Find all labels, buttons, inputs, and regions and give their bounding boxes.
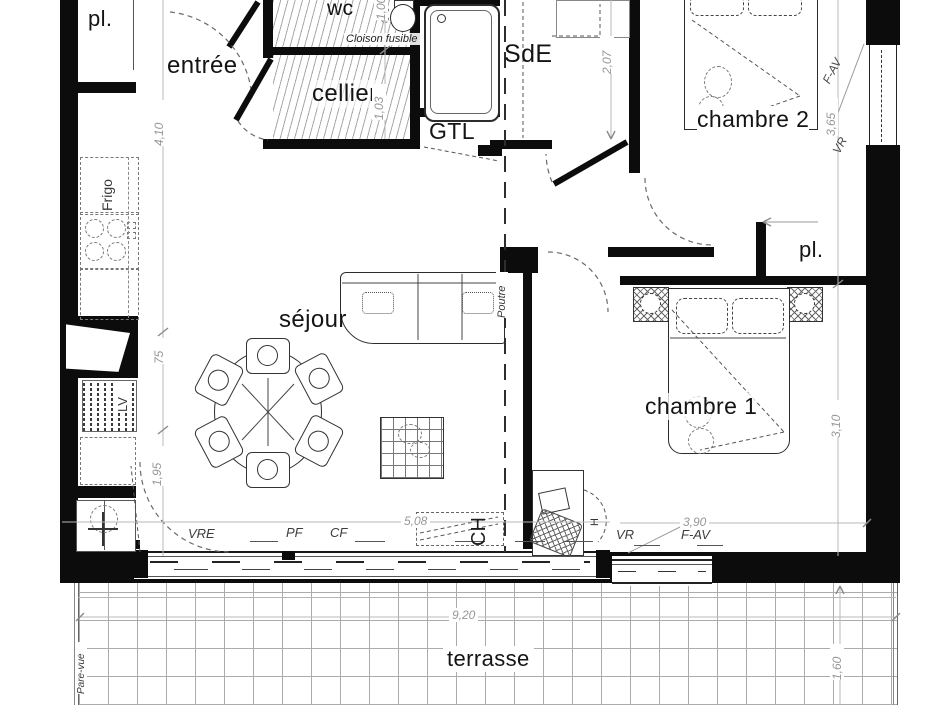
window-bay-frame — [134, 576, 610, 577]
chair-seat — [305, 364, 333, 392]
dim-3-10: 3,10 — [829, 400, 843, 438]
opening-label-vr-ch1: VR — [616, 527, 634, 542]
window-chambre2 — [866, 45, 900, 145]
room-label-chambre1: chambre 1 — [645, 393, 757, 420]
opening-dash — [634, 545, 660, 546]
room-label-chambre2: chambre 2 — [697, 106, 809, 133]
pillow — [676, 298, 728, 334]
lv-label: LV — [115, 382, 130, 412]
dim-4-10: 4,10 — [152, 100, 166, 146]
dim-75: 75 — [152, 338, 166, 364]
room-label-cellier: cellier — [312, 80, 377, 108]
ch-label: CH — [468, 502, 491, 546]
toilet-bowl — [390, 4, 416, 32]
dim-2-07: 2,07 — [600, 36, 614, 74]
chair-seat — [204, 366, 232, 394]
opening-label-pf: PF — [286, 525, 303, 540]
dim-1-00: 1,00 — [374, 0, 388, 20]
opening-label-fav-ch1: F-AV — [681, 527, 710, 542]
radiator-entree-mark — [102, 512, 104, 546]
dim-tick — [158, 426, 168, 434]
opening-label-vr-ch2: VR — [830, 135, 850, 156]
entrance-door-leaf — [229, 2, 258, 47]
opening-label-vre: VRE — [188, 526, 215, 541]
terrasse-floor — [78, 583, 898, 705]
room-label-pl-right: pl. — [799, 237, 823, 263]
pillow — [732, 298, 784, 334]
window-bay-mullion — [134, 550, 148, 578]
cloison-fusible-label: Cloison fusible — [344, 33, 420, 45]
dim-arrow — [607, 131, 611, 139]
opening-dash — [563, 541, 593, 542]
pl-top-divider-line — [133, 0, 134, 70]
window-bay-mullion — [282, 551, 295, 560]
pillow — [690, 0, 744, 16]
window-chambre1-frame — [612, 582, 712, 584]
kitchen-counter — [80, 268, 139, 320]
room-label-sde: SdE — [504, 40, 552, 69]
floor-plan: pl. wc entrée cellier SdE GTL chambre 2 … — [0, 0, 940, 705]
chair — [246, 338, 290, 374]
wall-segment — [608, 247, 714, 257]
dim-5-08: 5,08 — [401, 514, 430, 528]
window-bay-frame — [134, 556, 610, 557]
dim-1-95: 1,95 — [150, 446, 164, 486]
dim-1-60: 1,60 — [830, 644, 844, 680]
window-bay-sash-dashes — [150, 561, 590, 563]
cat-on-bed1 — [688, 428, 714, 454]
chair-seat — [205, 427, 233, 455]
counter-edge-line — [128, 157, 129, 318]
window-bay-sash-dashes — [150, 569, 590, 570]
window-chambre2-frame — [869, 45, 870, 145]
room-label-pl-top: pl. — [88, 6, 112, 32]
wall-partition-sejour-ch1 — [523, 273, 532, 557]
wall-segment — [756, 222, 766, 282]
wall-segment — [629, 0, 640, 173]
nightstand-lamp — [794, 293, 815, 314]
window-chambre1-frame — [612, 564, 712, 565]
window-chambre2-frame — [896, 45, 897, 145]
dim-arrow — [611, 131, 615, 139]
dim-tick — [158, 328, 168, 336]
chair-seat — [304, 427, 332, 455]
pillow — [748, 0, 802, 16]
wall-segment — [62, 486, 136, 498]
chambre1-door-arc — [548, 252, 608, 312]
cat-on-rug — [410, 442, 430, 458]
room-label-gtl: GTL — [429, 118, 475, 145]
shower-drain — [437, 14, 446, 23]
dim-1-03: 1,03 — [372, 84, 386, 120]
wall-segment — [490, 140, 552, 149]
opening-dash — [515, 541, 545, 542]
vanity-sde — [556, 0, 630, 38]
chair-seat — [257, 345, 278, 366]
terrasse-extra-line — [78, 597, 896, 598]
room-label-terrasse: terrasse — [443, 646, 534, 672]
opening-label-fav-ch2: F-AV — [820, 56, 845, 86]
burner — [85, 242, 104, 261]
h-mark-label: H — [589, 508, 601, 526]
room-label-sejour: séjour — [279, 306, 347, 334]
opening-label-cf: CF — [330, 525, 347, 540]
opening-dash — [355, 541, 385, 542]
opening-dash — [250, 541, 278, 542]
frigo-label: Frigo — [99, 161, 115, 211]
wall-segment — [60, 82, 136, 93]
hall-door-arc — [546, 154, 552, 182]
kitchen-cabinet — [80, 437, 136, 485]
window-chambre1-frame — [612, 559, 712, 561]
opening-dash — [697, 545, 723, 546]
sofa-cushion — [462, 292, 494, 314]
dim-3-90: 3,90 — [680, 515, 709, 529]
chambre2-door-arc — [645, 178, 712, 245]
terrasse-edge-line-right — [893, 583, 894, 705]
wall-cloison — [263, 47, 420, 55]
window-chambre1-sash-dashes — [618, 571, 706, 572]
shower-tray-inner — [430, 10, 492, 114]
nightstand-lamp — [640, 293, 661, 314]
burner — [85, 219, 104, 238]
terrasse-edge-line-left — [74, 583, 75, 705]
wall-chambre1-north — [620, 276, 868, 285]
window-chambre2-sash — [881, 50, 882, 142]
burner — [107, 219, 126, 238]
sofa-cushion — [362, 292, 394, 314]
poutre-label: Poutre — [496, 272, 508, 318]
cat-on-bed2 — [704, 66, 732, 98]
cellier-door-leaf — [236, 59, 271, 120]
room-label-wc: wc — [327, 0, 353, 21]
hall-door-leaf — [554, 142, 627, 184]
window-bay-mullion — [596, 550, 610, 578]
cat-on-rug — [398, 424, 422, 444]
chair-seat — [257, 459, 278, 480]
cellier-door-arc — [238, 121, 268, 140]
room-label-entree: entrée — [167, 52, 237, 80]
dim-3-65: 3,65 — [824, 98, 838, 136]
wall-segment — [263, 139, 420, 149]
pare-vue-label: Pare-vue — [76, 642, 87, 694]
dim-9-20: 9,20 — [449, 608, 478, 622]
burner — [107, 242, 126, 261]
chair — [246, 452, 290, 488]
wall-segment — [500, 247, 538, 273]
